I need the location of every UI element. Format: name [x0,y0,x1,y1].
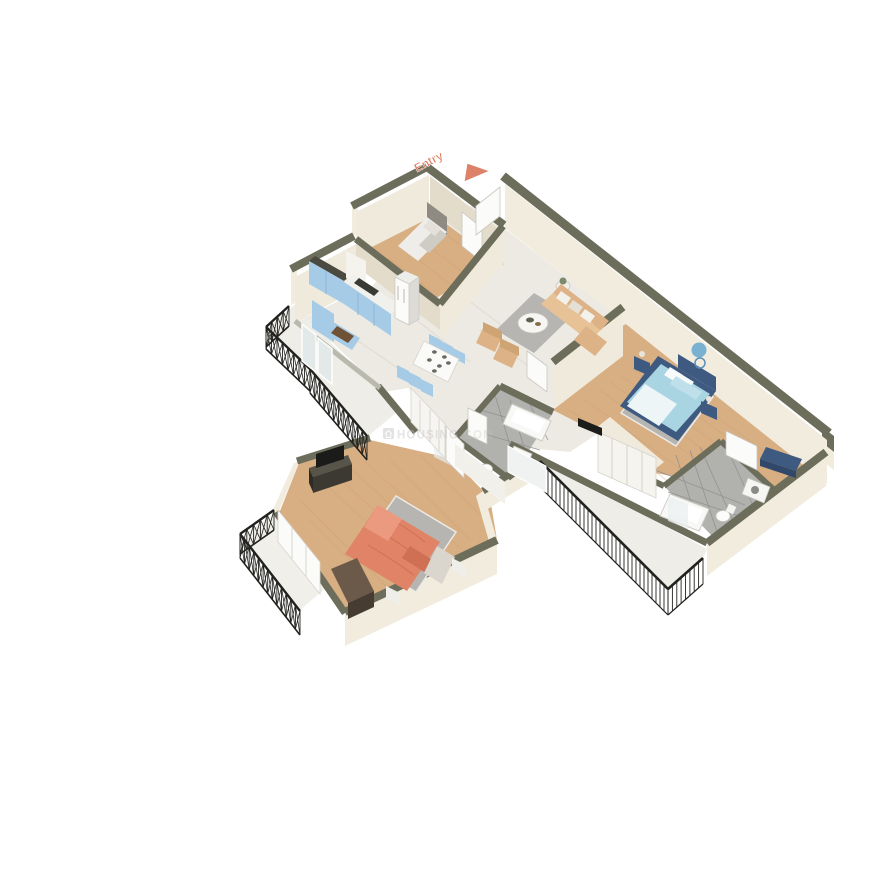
svg-text:HOUSING.COM: HOUSING.COM [397,430,494,442]
